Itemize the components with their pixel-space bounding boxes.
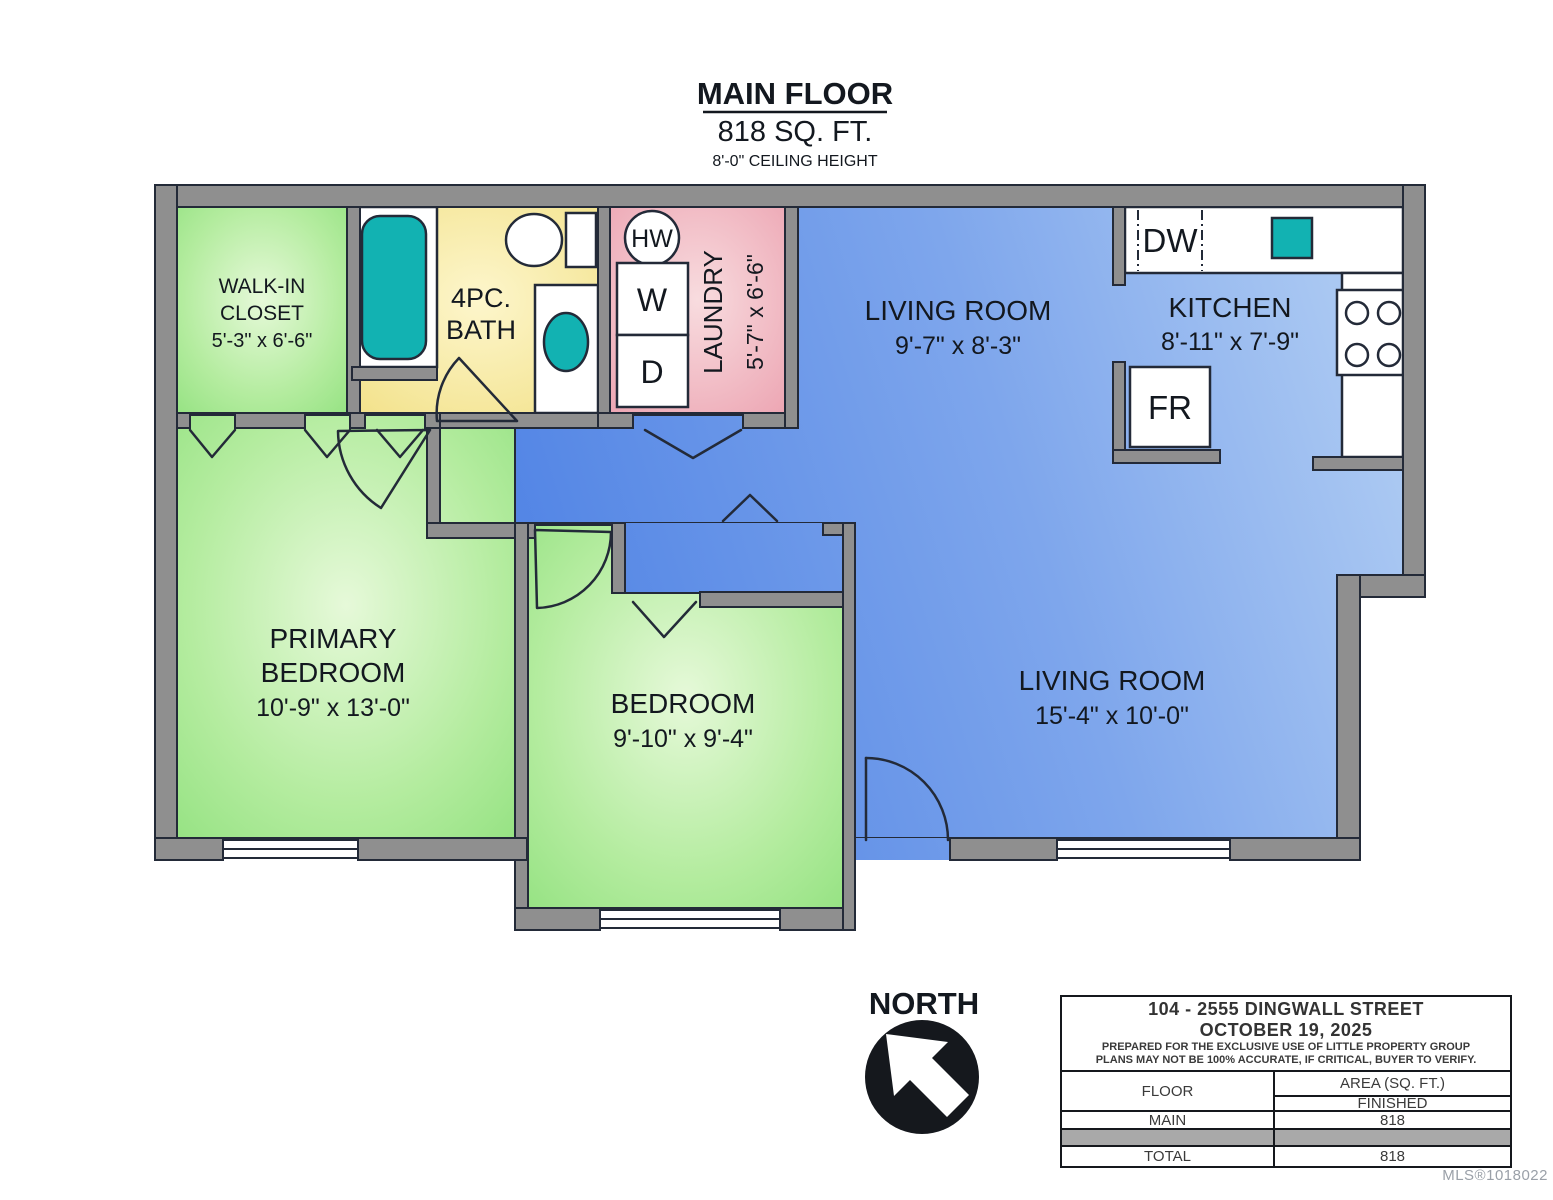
col-header-area: AREA (SQ. FT.) <box>1275 1072 1510 1095</box>
entry-doorway-floor <box>855 838 952 860</box>
plan-date: OCTOBER 19, 2025 <box>1062 1020 1510 1041</box>
info-table-title-block: 104 - 2555 DINGWALL STREET OCTOBER 19, 2… <box>1062 997 1510 1072</box>
wall-primary-right <box>515 523 528 838</box>
row-spacer-right <box>1275 1128 1510 1145</box>
wall-tub-alcove-bottom <box>352 367 437 380</box>
label-dryer: D <box>640 354 663 390</box>
label-primary-2: BEDROOM <box>261 657 406 688</box>
label-living-main-dims: 15'-4" x 10'-0" <box>1035 702 1189 730</box>
wall-closet-right <box>347 207 360 413</box>
label-primary-1: PRIMARY <box>269 623 396 654</box>
wall-bedroom-ne <box>700 592 843 607</box>
wall-closet-bottom-b <box>235 413 305 428</box>
label-bath-1: 4PC. <box>451 283 511 313</box>
hall-pocket-floor <box>625 523 843 593</box>
label-dishwasher: DW <box>1143 222 1199 259</box>
wall-exterior-right-upper <box>1403 185 1425 597</box>
label-bedroom: BEDROOM <box>611 688 756 719</box>
wall-exterior-top <box>155 185 1425 207</box>
label-walk-in-closet-2: CLOSET <box>220 302 304 325</box>
wall-exterior-right-lower <box>1337 575 1360 860</box>
mls-watermark: MLS®1018022 <box>1408 1167 1548 1184</box>
label-hot-water: HW <box>631 225 673 253</box>
wall-closet-jamb <box>612 523 625 593</box>
plan-title: MAIN FLOOR <box>697 76 893 111</box>
north-label: NORTH <box>869 986 979 1021</box>
wall-bottom-left-a <box>155 838 223 860</box>
wall-bottom-left-b <box>358 838 527 860</box>
label-living-front-dims: 9'-7" x 8'-3" <box>895 332 1021 360</box>
wall-hall-west <box>427 428 440 523</box>
row-main-label: MAIN <box>1062 1110 1275 1128</box>
stove-burner <box>1378 344 1400 366</box>
label-bedroom-dims: 9'-10" x 9'-4" <box>613 725 753 753</box>
laundry-doorway-floor <box>633 414 743 430</box>
wall-fridge-nook-bottom <box>1113 450 1220 463</box>
info-table: 104 - 2555 DINGWALL STREET OCTOBER 19, 2… <box>1060 995 1512 1168</box>
label-walk-in-closet-1: WALK-IN <box>219 275 306 298</box>
floor-plan-page: MAIN FLOOR 818 SQ. FT. 8'-0" CEILING HEI… <box>0 0 1553 1200</box>
wall-laundry-right <box>785 207 798 428</box>
label-walk-in-closet-dims: 5'-3" x 6'-6" <box>212 330 313 352</box>
wall-bottom-right-b <box>1230 838 1360 860</box>
label-kitchen: KITCHEN <box>1169 292 1292 323</box>
label-living-main: LIVING ROOM <box>1019 665 1206 696</box>
label-laundry: LAUNDRY <box>698 250 728 374</box>
plan-ceiling-height: 8'-0" CEILING HEIGHT <box>712 153 877 170</box>
label-kitchen-dims: 8'-11" x 7'-9" <box>1161 328 1299 356</box>
area-table: FLOOR AREA (SQ. FT.) FINISHED MAIN 818 T… <box>1062 1072 1510 1166</box>
toilet-tank-icon <box>566 213 596 267</box>
wall-kitchen-stub <box>1113 207 1125 285</box>
label-bath-2: BATH <box>446 315 516 345</box>
label-washer: W <box>637 282 668 318</box>
wall-bump-bottom-a <box>515 908 600 930</box>
row-total-value: 818 <box>1275 1145 1510 1166</box>
col-header-finished: FINISHED <box>1275 1095 1510 1110</box>
wall-fridge-nook-left <box>1113 362 1125 462</box>
wall-closet-bottom-c <box>350 413 365 428</box>
stove-burner <box>1346 344 1368 366</box>
stove-burner <box>1378 302 1400 324</box>
label-fridge: FR <box>1148 389 1192 426</box>
wall-exterior-left <box>155 185 177 860</box>
stove-burner <box>1346 302 1368 324</box>
toilet-bowl-icon <box>506 214 562 266</box>
bathtub-icon <box>362 216 426 359</box>
wall-bottom-right-a <box>950 838 1057 860</box>
disclaimer-line-1: PREPARED FOR THE EXCLUSIVE USE OF LITTLE… <box>1062 1041 1510 1054</box>
kitchen-sink-icon <box>1272 218 1312 258</box>
wall-bedroom-right <box>843 523 855 930</box>
row-spacer-left <box>1062 1128 1275 1145</box>
wall-foot-stub <box>823 523 843 535</box>
row-total-label: TOTAL <box>1062 1145 1275 1166</box>
plan-area: 818 SQ. FT. <box>718 116 873 148</box>
disclaimer-line-2: PLANS MAY NOT BE 100% ACCURATE, IF CRITI… <box>1062 1054 1510 1067</box>
label-living-front: LIVING ROOM <box>865 295 1052 326</box>
label-primary-dims: 10'-9" x 13'-0" <box>256 694 410 722</box>
bath-sink-icon <box>544 313 588 371</box>
row-main-value: 818 <box>1275 1110 1510 1128</box>
wall-closet-bottom-a <box>177 413 190 428</box>
wall-laundry-bottom-a <box>598 413 633 428</box>
col-header-floor: FLOOR <box>1062 1072 1275 1110</box>
wall-laundry-left <box>598 207 610 413</box>
property-address: 104 - 2555 DINGWALL STREET <box>1062 999 1510 1020</box>
wall-kitchen-bottom <box>1313 457 1403 470</box>
label-laundry-dims: 5'-7" x 6'-6" <box>742 254 768 370</box>
north-compass: NORTH <box>865 986 979 1134</box>
